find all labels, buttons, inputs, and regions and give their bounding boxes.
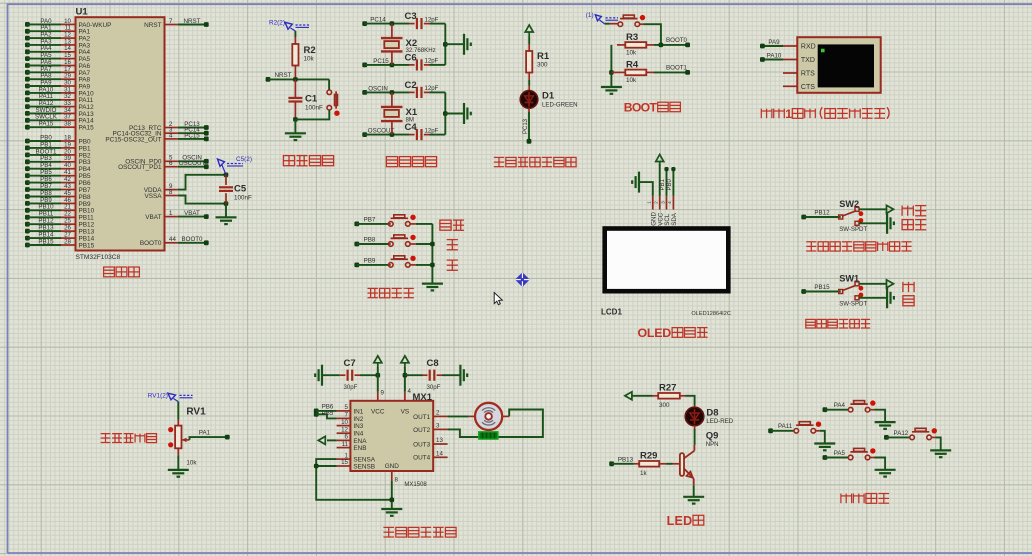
svg-text:OLED: OLED — [638, 326, 672, 340]
svg-text:LCD1: LCD1 — [601, 308, 622, 317]
svg-text:9: 9 — [381, 390, 385, 397]
svg-text:OSCOUT_PD1: OSCOUT_PD1 — [118, 164, 162, 171]
svg-text:PB13: PB13 — [618, 457, 634, 464]
svg-text:PB8: PB8 — [364, 237, 376, 244]
svg-text:8: 8 — [169, 189, 173, 196]
svg-text:MX1: MX1 — [413, 392, 433, 403]
svg-text:LED: LED — [667, 514, 693, 528]
svg-text:MX1508: MX1508 — [404, 482, 427, 488]
svg-text:R2: R2 — [304, 45, 316, 56]
svg-text:2: 2 — [654, 201, 660, 204]
svg-text:PB1: PB1 — [660, 178, 666, 190]
svg-text:10k: 10k — [304, 56, 315, 63]
svg-text:PB15: PB15 — [38, 238, 54, 245]
svg-text:BOOT0: BOOT0 — [666, 37, 688, 44]
svg-text:PB15: PB15 — [79, 242, 95, 249]
svg-text:PB7: PB7 — [79, 187, 92, 194]
svg-text:PB1: PB1 — [79, 145, 92, 152]
svg-text:10k: 10k — [626, 77, 637, 84]
svg-text:CTS: CTS — [801, 84, 815, 91]
svg-text:VS: VS — [401, 409, 410, 416]
svg-text:PB0: PB0 — [667, 178, 673, 190]
svg-text:PB4: PB4 — [79, 166, 92, 173]
svg-text:OUT3: OUT3 — [413, 441, 430, 448]
svg-text:PA4: PA4 — [834, 402, 846, 409]
svg-text:Q9: Q9 — [706, 430, 719, 441]
svg-text:28: 28 — [64, 238, 71, 245]
svg-text:7: 7 — [169, 18, 173, 25]
svg-text:D1: D1 — [542, 91, 555, 102]
svg-text:R3: R3 — [626, 32, 638, 43]
svg-text:PA12: PA12 — [894, 430, 909, 437]
svg-text:10k: 10k — [186, 460, 197, 467]
svg-text:4: 4 — [667, 201, 673, 204]
svg-text:300: 300 — [537, 62, 548, 69]
svg-text:PA10: PA10 — [767, 52, 782, 59]
svg-text:NPN: NPN — [706, 441, 719, 448]
svg-text:C6: C6 — [405, 52, 417, 63]
svg-text:PC14: PC14 — [370, 17, 386, 24]
svg-text:IN3: IN3 — [353, 423, 363, 430]
svg-text:12pF: 12pF — [425, 127, 439, 134]
svg-text:BOOT1: BOOT1 — [666, 65, 688, 72]
svg-text:RV1(2): RV1(2) — [148, 392, 168, 399]
svg-text:44: 44 — [169, 236, 176, 243]
svg-text:PA1: PA1 — [199, 430, 211, 437]
svg-text:38: 38 — [64, 121, 71, 128]
svg-text:30pF: 30pF — [344, 384, 358, 391]
svg-text:PB7: PB7 — [364, 217, 376, 224]
svg-text:7: 7 — [345, 412, 349, 419]
svg-text:SW-SPDT: SW-SPDT — [839, 226, 867, 233]
svg-text:NRST: NRST — [144, 22, 161, 29]
svg-text:6: 6 — [169, 160, 173, 167]
svg-text:PA15: PA15 — [79, 125, 95, 132]
svg-text:RV1: RV1 — [186, 407, 206, 418]
svg-text:1: 1 — [785, 107, 792, 121]
svg-text:R27: R27 — [659, 383, 676, 394]
svg-text:12: 12 — [341, 426, 348, 433]
svg-text:PB13: PB13 — [38, 225, 54, 232]
svg-text:11: 11 — [342, 441, 349, 448]
svg-text:12pF: 12pF — [425, 85, 439, 92]
svg-text:1k: 1k — [640, 470, 648, 477]
svg-text:BOOT0: BOOT0 — [140, 240, 162, 247]
svg-text:13: 13 — [436, 437, 443, 444]
svg-text:300: 300 — [659, 402, 670, 409]
svg-text:GND: GND — [385, 463, 400, 470]
svg-text:PC15: PC15 — [184, 132, 200, 139]
svg-text:30pF: 30pF — [427, 384, 441, 391]
svg-text:RTS: RTS — [801, 71, 815, 78]
svg-text:PB7: PB7 — [40, 183, 52, 190]
svg-text:PC13: PC13 — [523, 118, 529, 134]
svg-text:2: 2 — [436, 410, 440, 417]
svg-text:SW1: SW1 — [839, 274, 859, 284]
svg-text:19: 19 — [64, 141, 71, 148]
svg-text:PA5: PA5 — [834, 450, 846, 457]
svg-text:21: 21 — [64, 204, 71, 211]
svg-text:4: 4 — [169, 132, 173, 139]
svg-text:OSCIN: OSCIN — [368, 85, 388, 92]
svg-text:10: 10 — [341, 419, 348, 426]
svg-text:OUT2: OUT2 — [413, 427, 430, 434]
svg-text:NRST: NRST — [184, 18, 201, 25]
svg-text:12pF: 12pF — [425, 58, 439, 65]
svg-text:15: 15 — [341, 459, 348, 466]
svg-text:12pF: 12pF — [425, 16, 439, 23]
svg-text:PA15: PA15 — [39, 121, 54, 128]
svg-text:VCC: VCC — [371, 409, 385, 416]
svg-text:PA11: PA11 — [778, 423, 793, 430]
svg-text:OLED12864I2C: OLED12864I2C — [691, 311, 731, 317]
svg-text:IN2: IN2 — [353, 416, 363, 423]
svg-text:1: 1 — [169, 210, 173, 217]
svg-text:PC15: PC15 — [373, 58, 389, 65]
svg-text:VBAT: VBAT — [145, 214, 161, 221]
svg-text:100nF: 100nF — [234, 195, 252, 202]
svg-text:C4: C4 — [405, 122, 418, 133]
svg-text:8: 8 — [395, 477, 399, 484]
svg-text:IN1: IN1 — [353, 408, 363, 415]
svg-text:SW-SPDT: SW-SPDT — [839, 301, 867, 308]
svg-text:SENSB: SENSB — [353, 463, 375, 470]
svg-text:PB13: PB13 — [79, 229, 95, 236]
svg-text:U1: U1 — [76, 7, 89, 18]
svg-text:PB12: PB12 — [814, 210, 830, 217]
svg-text:3: 3 — [660, 201, 666, 204]
svg-text:OUT4: OUT4 — [413, 455, 430, 462]
svg-text:PB9: PB9 — [364, 258, 376, 265]
svg-text:PB1: PB1 — [40, 141, 52, 148]
svg-text:PA9: PA9 — [768, 39, 780, 46]
svg-text:LED-RED: LED-RED — [706, 418, 733, 425]
svg-text:VSSA: VSSA — [144, 193, 162, 200]
svg-text:BOOT: BOOT — [624, 101, 658, 115]
svg-text:10k: 10k — [626, 50, 637, 57]
svg-text:R29: R29 — [640, 451, 657, 462]
svg-text:6: 6 — [345, 434, 349, 441]
svg-text:PB15: PB15 — [814, 284, 830, 291]
svg-text:C8: C8 — [427, 358, 439, 369]
svg-text:ENA: ENA — [353, 438, 367, 445]
svg-text:PB4: PB4 — [40, 162, 52, 169]
svg-text:C2: C2 — [405, 80, 417, 91]
svg-text:ENB: ENB — [353, 445, 366, 452]
svg-text:NRST: NRST — [275, 72, 292, 79]
svg-text:PB10: PB10 — [79, 208, 95, 215]
svg-text:RXD: RXD — [801, 44, 816, 51]
svg-text:C1: C1 — [305, 94, 318, 105]
svg-text:4: 4 — [408, 388, 412, 395]
svg-text:40: 40 — [64, 162, 71, 169]
svg-text:BOOT0: BOOT0 — [182, 236, 204, 243]
svg-text:3: 3 — [436, 423, 440, 430]
svg-text:5: 5 — [345, 404, 349, 411]
svg-text:C5(2): C5(2) — [236, 156, 252, 163]
svg-text:D8: D8 — [706, 408, 718, 419]
svg-text:OUT1: OUT1 — [413, 414, 430, 421]
svg-text:VBAT: VBAT — [184, 210, 200, 217]
svg-text:R4: R4 — [626, 60, 639, 71]
svg-text:14: 14 — [436, 451, 443, 458]
svg-text:OSCOUT: OSCOUT — [179, 160, 206, 167]
svg-text:C5: C5 — [234, 184, 247, 195]
svg-text:26: 26 — [64, 225, 71, 232]
svg-text:R2(2): R2(2) — [269, 20, 285, 27]
svg-text:IN4: IN4 — [353, 431, 363, 438]
svg-text:SDA: SDA — [671, 212, 678, 226]
svg-text:100nF: 100nF — [305, 105, 323, 112]
svg-text:STM32F103C8: STM32F103C8 — [76, 254, 121, 261]
svg-text:R1: R1 — [537, 51, 550, 62]
svg-text:TXD: TXD — [801, 57, 815, 64]
svg-text:C7: C7 — [344, 358, 356, 369]
svg-text:PB10: PB10 — [38, 204, 54, 211]
svg-text:(1): (1) — [586, 12, 594, 19]
svg-text:SW2: SW2 — [839, 199, 859, 209]
svg-text:43: 43 — [64, 183, 71, 190]
svg-text:C3: C3 — [405, 11, 417, 22]
svg-text:PB5: PB5 — [322, 410, 334, 417]
svg-text:LED-GREEN: LED-GREEN — [542, 102, 578, 109]
svg-text:PC15-OSC32_OUT: PC15-OSC32_OUT — [105, 136, 161, 143]
svg-text:1: 1 — [647, 201, 653, 204]
